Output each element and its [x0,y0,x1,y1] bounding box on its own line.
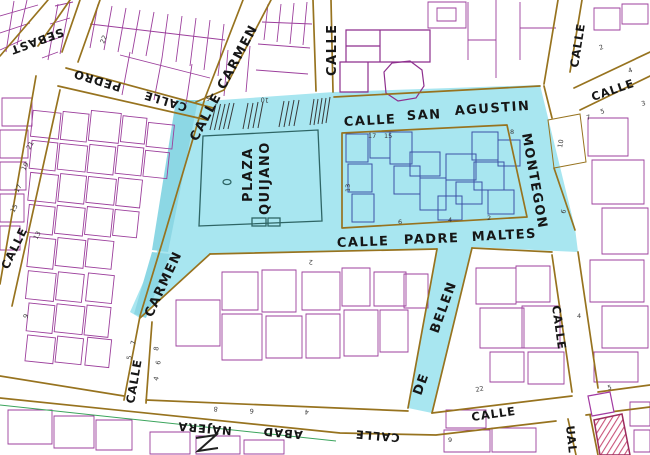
parcel-number: 6 [398,218,402,226]
parcel-number: 8 [213,405,218,413]
street-label-padre-calle: CALLE [337,234,390,251]
parcel-number: 6 [249,407,254,415]
place-label-quijano: QUIJANO [258,141,273,215]
parcel-number: 4 [448,216,452,224]
parcel-number: 2 [309,258,314,266]
parcel-number: 4 [577,312,581,320]
parcel-number: 8 [510,128,514,136]
parcel-number: 5 [206,94,211,102]
parcel-number: 2 [487,214,491,222]
parcel-number: 4 [304,408,309,416]
place-label-plaza: PLAZA [241,147,256,202]
street-label-pascual-partial: UAL [563,425,580,455]
parcel-number: 22 [475,384,485,394]
parcel-number: 17 [368,132,376,140]
street-label-top-center-calle: CALLE [325,23,340,76]
parcel-number: 10 [556,139,565,149]
cadastral-map[interactable]: SEBAST CALLE PEDRO CALLE CARMEN CALLE CA… [0,0,650,455]
parcel-number: 13 [344,184,352,192]
map-canvas: SEBAST CALLE PEDRO CALLE CARMEN CALLE CA… [0,0,650,455]
parcel-number: 15 [384,132,392,140]
street-label-san-agustin-calle: CALLE [343,112,396,130]
street-label-padre: PADRE [404,231,460,248]
parcel-number: 10 [260,96,269,104]
parcel-number: 9 [448,436,452,444]
street-label-san-agustin-san: SAN [406,107,442,124]
